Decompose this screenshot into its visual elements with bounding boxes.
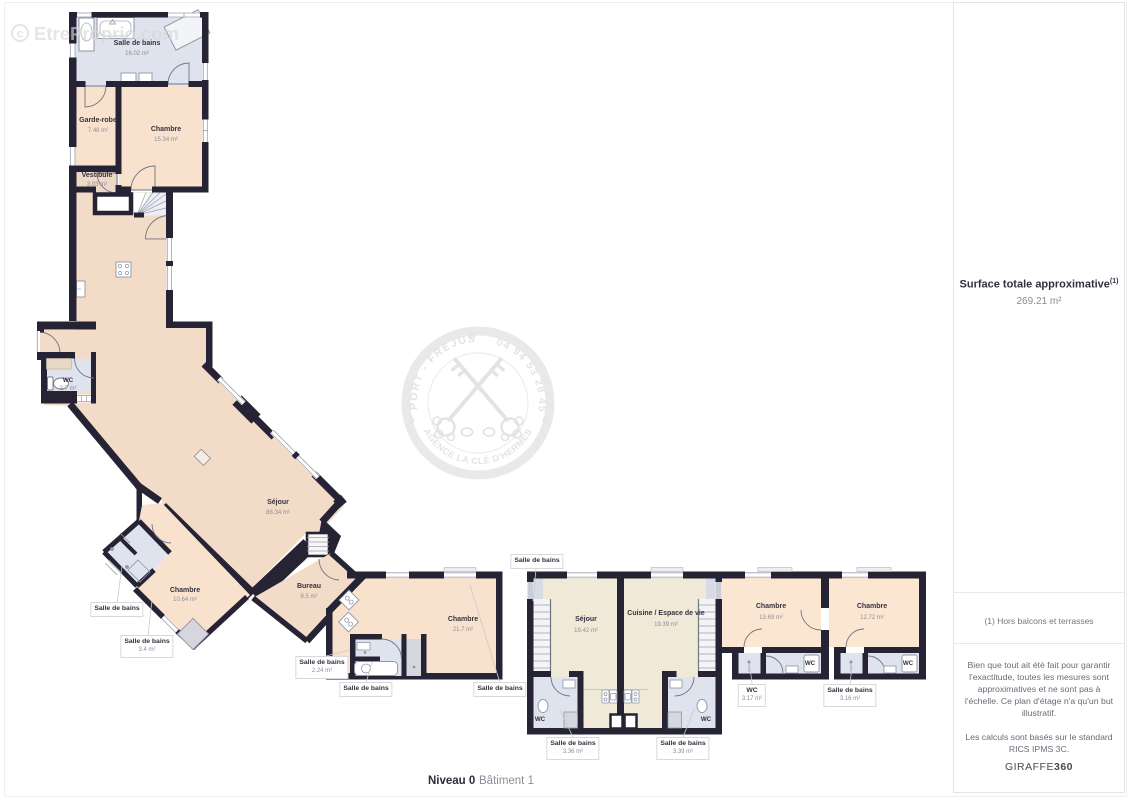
svg-text:19.39 m²: 19.39 m² (654, 622, 678, 628)
svg-text:Chambre: Chambre (756, 603, 786, 610)
svg-text:c: c (17, 27, 24, 41)
svg-text:21.7 m²: 21.7 m² (453, 627, 473, 633)
svg-text:EtreProprio.com: EtreProprio.com (34, 23, 179, 44)
svg-text:Séjour: Séjour (267, 499, 289, 506)
svg-text:Chambre: Chambre (151, 126, 181, 133)
svg-text:19.42 m²: 19.42 m² (574, 628, 598, 634)
svg-text:Chambre: Chambre (170, 587, 200, 594)
svg-text:15.34 m²: 15.34 m² (154, 137, 178, 143)
svg-text:3.03 m²: 3.03 m² (87, 182, 107, 188)
svg-text:WC: WC (903, 660, 914, 667)
svg-text:88.34 m²: 88.34 m² (266, 510, 290, 516)
svg-text:WC: WC (535, 716, 546, 723)
svg-text:2.7 m²: 2.7 m² (59, 386, 76, 392)
svg-text:Garde-robe: Garde-robe (79, 117, 117, 124)
svg-text:16.02 m²: 16.02 m² (125, 51, 149, 57)
svg-text:Chambre: Chambre (448, 616, 478, 623)
svg-text:7.48 m²: 7.48 m² (88, 128, 108, 134)
svg-text:WC: WC (63, 377, 74, 384)
svg-text:Chambre: Chambre (857, 603, 887, 610)
svg-text:Séjour: Séjour (575, 616, 597, 623)
svg-text:Cuisine / Espace de vie: Cuisine / Espace de vie (627, 610, 705, 617)
svg-text:Bureau: Bureau (297, 583, 321, 590)
svg-text:10.64 m²: 10.64 m² (173, 597, 197, 603)
svg-text:12.72 m²: 12.72 m² (860, 615, 884, 621)
svg-text:WC: WC (805, 660, 816, 667)
svg-text:WC: WC (701, 716, 712, 723)
svg-text:8.5 m²: 8.5 m² (300, 594, 317, 600)
svg-text:Vestibule: Vestibule (82, 172, 113, 179)
svg-text:13.69 m²: 13.69 m² (759, 615, 783, 621)
